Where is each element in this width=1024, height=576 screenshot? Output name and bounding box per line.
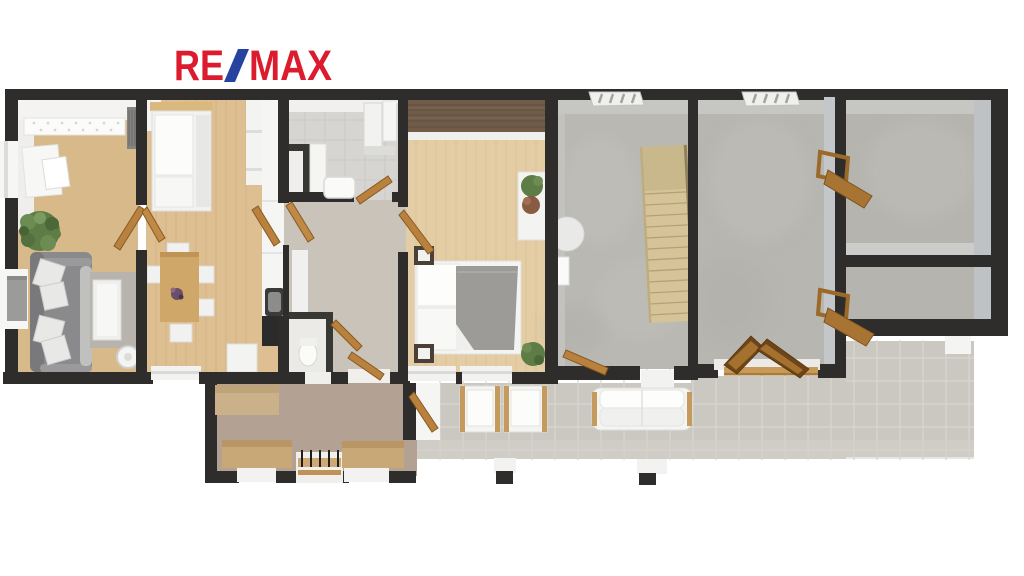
svg-text:MAX: MAX	[249, 42, 332, 90]
svg-text:RE: RE	[174, 42, 224, 90]
